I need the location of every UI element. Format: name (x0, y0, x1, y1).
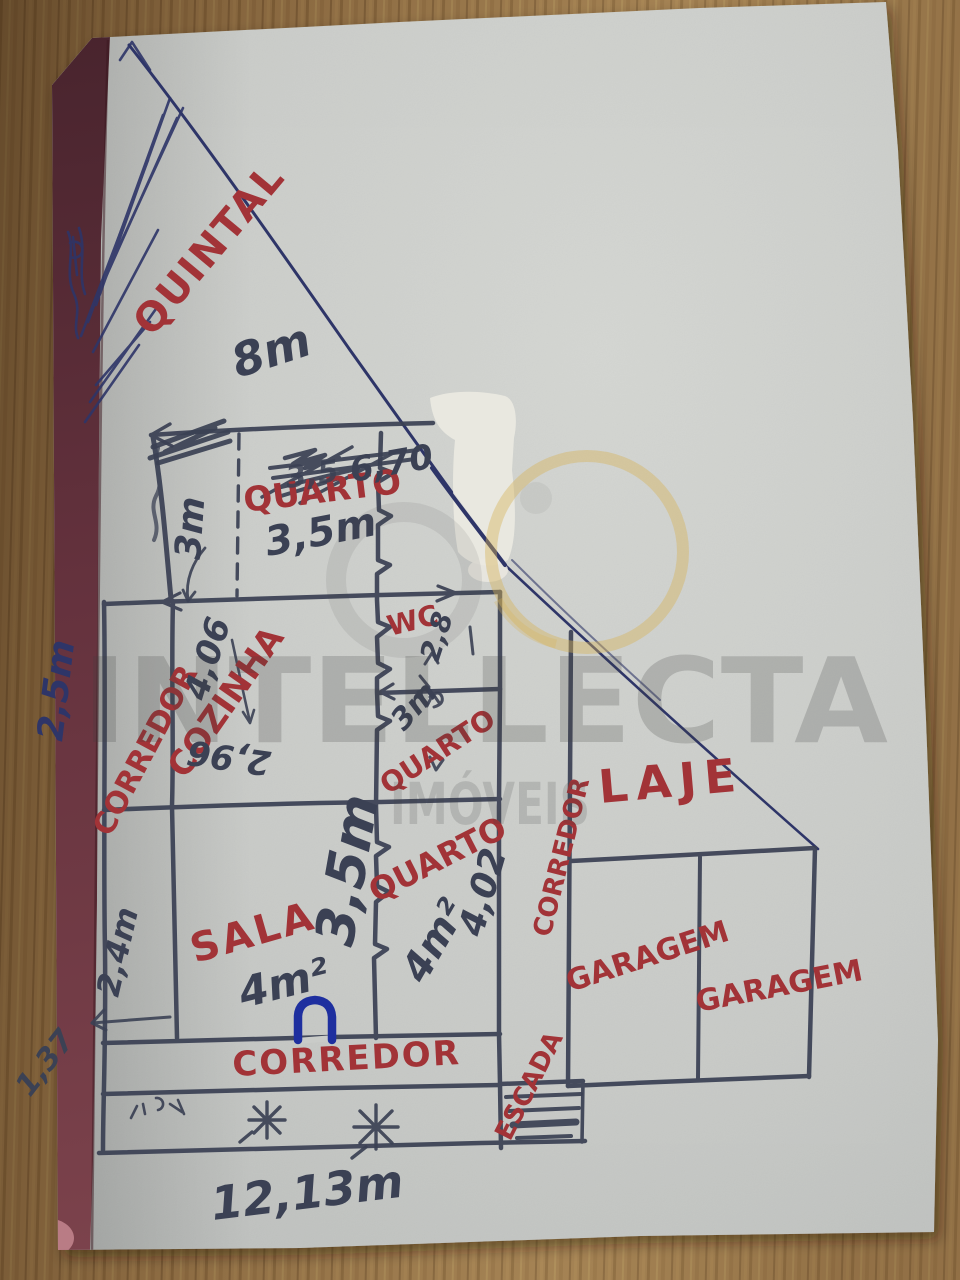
measure-crossed-out: 3,5 (283, 454, 341, 496)
watermark-sub-text: IMÓVEIS (390, 769, 590, 838)
measure-quarto-top-h: 3m (168, 495, 213, 560)
watermark-brand-text: INTELLECTA (82, 632, 888, 770)
photo-canvas: QUINTAL QUARTO WC COZINHA CORREDOR QUART… (0, 0, 960, 1280)
